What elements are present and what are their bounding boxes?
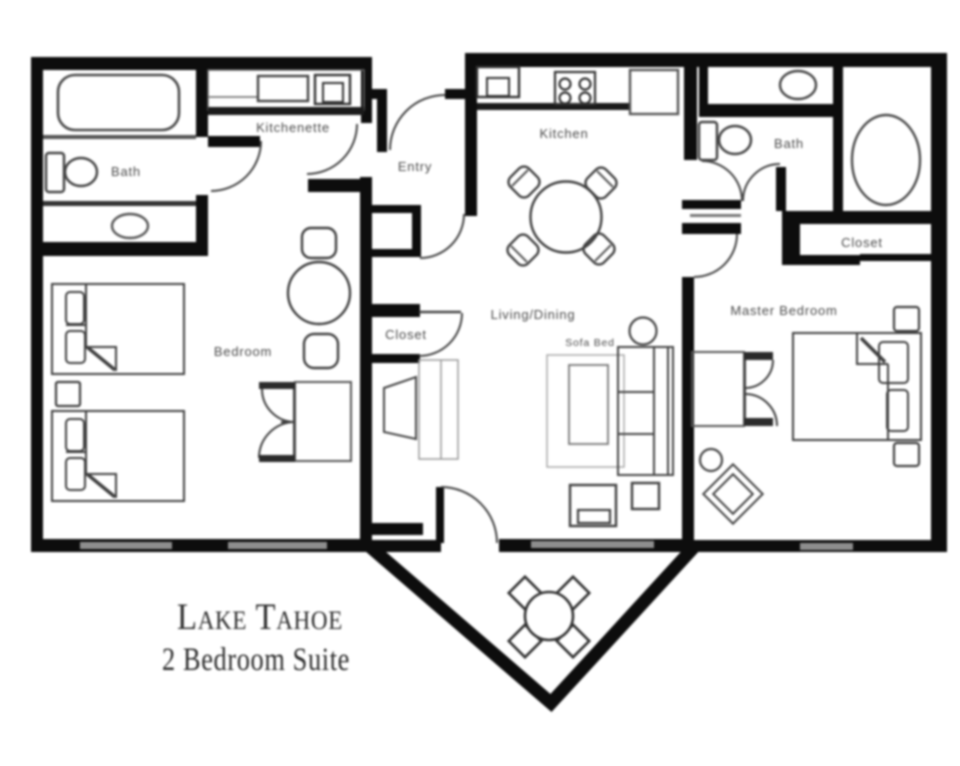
svg-text:Sofa Bed: Sofa Bed	[565, 337, 615, 349]
svg-text:Closet: Closet	[841, 235, 883, 250]
svg-text:Bedroom: Bedroom	[214, 344, 272, 359]
svg-text:2 Bedroom Suite: 2 Bedroom Suite	[162, 642, 350, 678]
svg-text:Bath: Bath	[774, 136, 804, 151]
svg-text:Entry: Entry	[398, 159, 432, 174]
svg-text:Master Bedroom: Master Bedroom	[730, 303, 837, 318]
svg-text:Kitchenette: Kitchenette	[256, 120, 330, 135]
svg-text:Kitchen: Kitchen	[540, 126, 589, 141]
svg-text:Living/Dining: Living/Dining	[491, 307, 576, 322]
svg-text:Closet: Closet	[385, 327, 427, 342]
svg-text:Bath: Bath	[111, 164, 141, 179]
svg-text:Lake Tahoe: Lake Tahoe	[177, 597, 343, 638]
